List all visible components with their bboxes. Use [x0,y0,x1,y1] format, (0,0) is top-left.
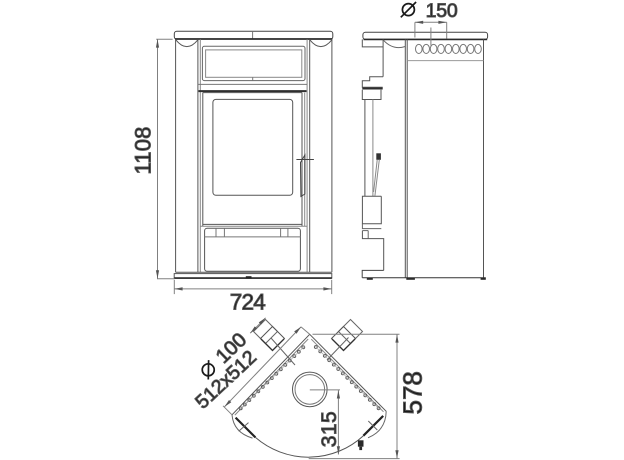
svg-text:150: 150 [426,0,458,22]
svg-text:315: 315 [318,411,341,448]
svg-text:724: 724 [230,290,265,315]
svg-text:1108: 1108 [131,126,156,174]
svg-text:578: 578 [398,371,428,414]
